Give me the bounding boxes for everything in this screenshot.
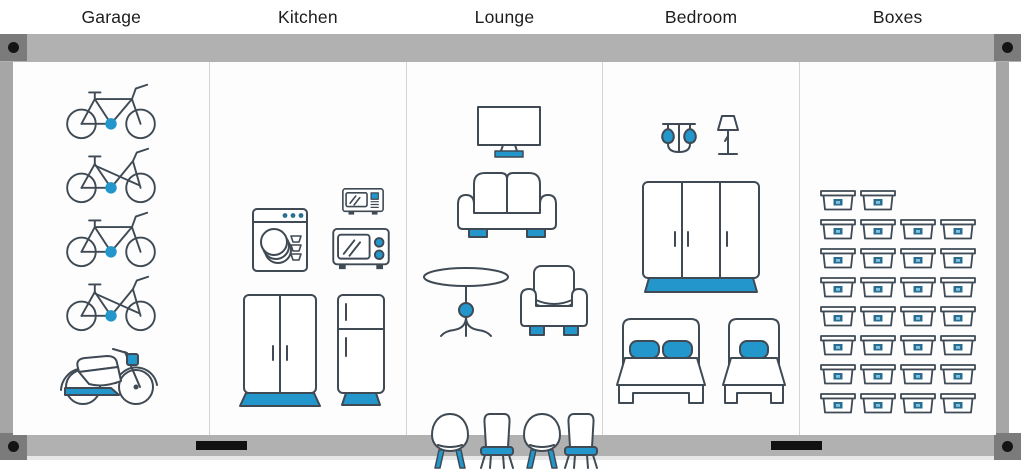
section-garage bbox=[13, 62, 210, 435]
tv-icon bbox=[477, 106, 541, 158]
storage-box-icon bbox=[820, 335, 856, 356]
section-boxes bbox=[800, 62, 996, 435]
storage-box-icon bbox=[940, 219, 976, 240]
section-bedroom bbox=[603, 62, 800, 435]
section-label-boxes: Boxes bbox=[799, 0, 996, 34]
section-labels-row: Garage Kitchen Lounge Bedroom Boxes bbox=[13, 0, 996, 34]
storage-box-icon bbox=[900, 364, 936, 385]
bolt-icon bbox=[1002, 441, 1013, 452]
storage-box-icon bbox=[940, 306, 976, 327]
removals-container-diagram: Garage Kitchen Lounge Bedroom Boxes bbox=[0, 0, 1024, 460]
storage-box-icon bbox=[860, 335, 896, 356]
bed-single-icon bbox=[721, 314, 787, 406]
section-kitchen bbox=[210, 62, 407, 435]
sofa-icon bbox=[455, 168, 559, 240]
storage-box-icon bbox=[900, 277, 936, 298]
empty-cell bbox=[940, 190, 976, 211]
section-lounge bbox=[407, 62, 604, 435]
bicycle-stepthrough-icon bbox=[63, 272, 159, 333]
chair-round-icon bbox=[427, 412, 473, 470]
container-right-rail bbox=[996, 62, 1009, 435]
storage-box-icon bbox=[820, 248, 856, 269]
storage-box-icon bbox=[940, 335, 976, 356]
storage-box-icon bbox=[940, 277, 976, 298]
section-label-lounge: Lounge bbox=[406, 0, 603, 34]
corner-plate-bottom-left bbox=[0, 433, 27, 460]
microwave-small-icon bbox=[342, 188, 384, 217]
armchair-icon bbox=[519, 264, 589, 340]
section-label-garage: Garage bbox=[13, 0, 210, 34]
bicycle-stepthrough-icon bbox=[63, 144, 159, 205]
bicycle-crossbar-icon bbox=[63, 208, 159, 269]
storage-box-icon bbox=[900, 335, 936, 356]
corner-plate-bottom-right bbox=[994, 433, 1021, 460]
storage-box-icon bbox=[820, 364, 856, 385]
storage-box-icon bbox=[900, 219, 936, 240]
bicycle-crossbar-icon bbox=[63, 80, 159, 141]
chair-round-icon bbox=[519, 412, 565, 470]
container-left-rail bbox=[0, 62, 13, 435]
storage-box-icon bbox=[900, 248, 936, 269]
kitchen-cabinet-icon bbox=[238, 294, 322, 408]
storage-box-icon bbox=[820, 190, 856, 211]
wardrobe-icon bbox=[639, 180, 763, 296]
section-label-kitchen: Kitchen bbox=[210, 0, 407, 34]
storage-box-icon bbox=[860, 306, 896, 327]
storage-box-icon bbox=[820, 306, 856, 327]
storage-box-icon bbox=[940, 248, 976, 269]
container-top-rail bbox=[0, 34, 1021, 62]
corner-plate-top-right bbox=[994, 34, 1021, 61]
storage-box-icon bbox=[900, 306, 936, 327]
storage-box-icon bbox=[820, 219, 856, 240]
storage-box-icon bbox=[860, 277, 896, 298]
fridge-icon bbox=[334, 294, 388, 408]
storage-box-icon bbox=[860, 219, 896, 240]
motorcycle-icon bbox=[53, 338, 165, 410]
storage-box-icon bbox=[860, 248, 896, 269]
bed-double-icon bbox=[615, 314, 707, 406]
bolt-icon bbox=[8, 42, 19, 53]
storage-box-icon bbox=[940, 393, 976, 414]
box-grid bbox=[820, 190, 976, 414]
handle-icon bbox=[196, 441, 247, 450]
chair-straight-icon bbox=[561, 412, 601, 470]
storage-box-icon bbox=[860, 393, 896, 414]
table-lamp-icon bbox=[713, 114, 743, 160]
ceiling-lamp-icon bbox=[655, 120, 703, 160]
empty-cell bbox=[900, 190, 936, 211]
bolt-icon bbox=[1002, 42, 1013, 53]
storage-box-icon bbox=[940, 364, 976, 385]
storage-box-icon bbox=[820, 277, 856, 298]
bolt-icon bbox=[8, 441, 19, 452]
storage-box-icon bbox=[860, 190, 896, 211]
handle-icon bbox=[771, 441, 822, 450]
storage-box-icon bbox=[900, 393, 936, 414]
microwave-large-icon bbox=[332, 228, 390, 272]
round-table-icon bbox=[421, 264, 511, 340]
corner-plate-top-left bbox=[0, 34, 27, 61]
storage-box-icon bbox=[860, 364, 896, 385]
dishwasher-icon bbox=[252, 208, 308, 274]
storage-box-icon bbox=[820, 393, 856, 414]
container-interior bbox=[13, 62, 996, 435]
chair-straight-icon bbox=[477, 412, 517, 470]
section-label-bedroom: Bedroom bbox=[603, 0, 800, 34]
